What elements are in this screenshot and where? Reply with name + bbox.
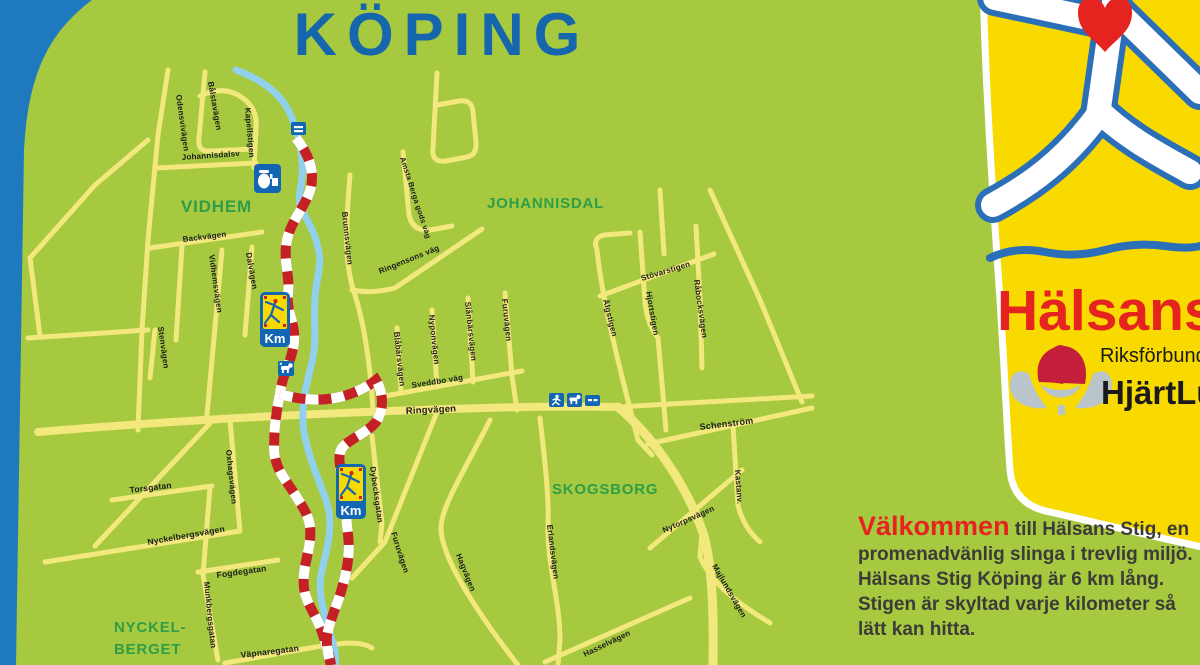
map-sign: Km Km OdensvivägenBålstavägenKapellstige… — [0, 0, 1200, 665]
kiosk-icon — [254, 164, 281, 193]
km-sign-label: Km — [265, 331, 286, 346]
area-label: JOHANNISDAL — [487, 195, 604, 212]
welcome-text: Välkommen till Hälsans Stig, en promenad… — [858, 514, 1200, 642]
welcome-line: promenadvänlig slinga i trevlig miljö. — [858, 542, 1200, 567]
page-title: KÖPING — [252, 0, 632, 69]
area-label: SKOGSBORG — [552, 481, 658, 498]
welcome-line: Välkommen till Hälsans Stig, en — [858, 514, 1200, 542]
area-label: VIDHEM — [181, 197, 252, 216]
area-label: BERGET — [114, 641, 181, 658]
bench-icon-2 — [585, 395, 600, 406]
km-sign-1: Km — [260, 292, 290, 347]
runner-icon — [549, 393, 564, 407]
km-sign-2: Km — [336, 464, 366, 519]
dog-icon-2 — [567, 393, 582, 407]
dog-icon — [278, 361, 294, 376]
km-sign-label: Km — [341, 503, 362, 518]
area-label: NYCKEL- — [114, 619, 186, 636]
welcome-line: Hälsans Stig Köping är 6 km lång. — [858, 567, 1200, 592]
org-name-bold: HjärtLung — [1101, 374, 1200, 411]
logo-panel: Hälsans Riksförbundet HjärtLung — [955, 0, 1200, 560]
welcome-line: Stigen är skyltad varje kilometer så — [858, 592, 1200, 617]
org-name-small: Riksförbundet — [1100, 345, 1200, 367]
brand-title: Hälsans — [997, 279, 1200, 343]
welcome-highlight: Välkommen — [858, 511, 1010, 541]
bench-icon — [291, 122, 306, 135]
welcome-line: lätt kan hitta. — [858, 617, 1200, 642]
welcome-intro-rest: till Hälsans Stig, en — [1010, 519, 1190, 540]
